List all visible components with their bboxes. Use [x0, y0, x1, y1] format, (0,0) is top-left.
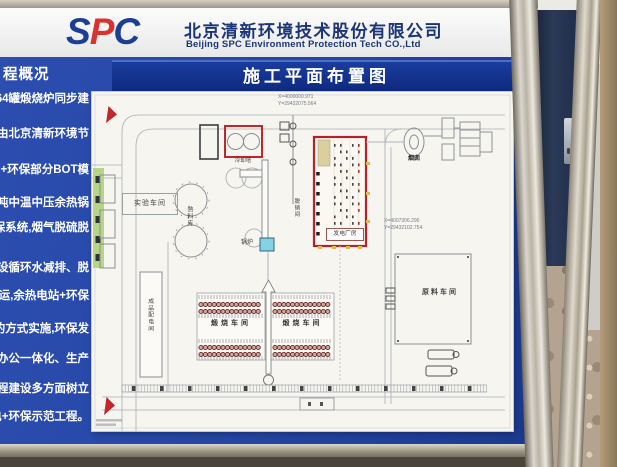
- label-product-distribution: 成品配电间: [146, 298, 153, 332]
- label-clinker-silo: 熟料库: [185, 206, 192, 227]
- label-chimney: 烟囱: [402, 156, 426, 163]
- label-boiler: 锅炉: [241, 240, 253, 247]
- label-raw-material: 原料车间: [422, 289, 458, 297]
- sidebar-text-line: C+环保部分BOT模: [0, 161, 92, 177]
- sidebar-text-line: 生产办公一体化、生产: [0, 350, 92, 366]
- label-calcination-right: 煅烧车间: [271, 320, 334, 328]
- signboard: SPC 北京清新环境技术股份有限公司 Beijing SPC Environme…: [0, 0, 541, 458]
- plan-boundary: [95, 95, 510, 428]
- sidebar-text-line: 吨中温中压余热锅: [0, 194, 92, 210]
- label-power-plant: 发电厂房: [326, 228, 364, 241]
- site-plan-drawing: [92, 92, 513, 431]
- logo-letter-c: C: [113, 11, 139, 52]
- sidebar-text-line: 由北京清新环境节: [0, 125, 92, 141]
- label-denitration: 脱硝间: [293, 198, 299, 218]
- sidebar-text-line: 64罐煅烧炉同步建: [0, 90, 92, 106]
- plan-markers: [96, 106, 469, 426]
- spc-logo: SPC: [66, 11, 139, 53]
- company-name-en: Beijing SPC Environment Protection Tech …: [186, 39, 421, 50]
- board-bottom-rail: [0, 444, 543, 458]
- plan-structures: [100, 115, 492, 410]
- board-top-frame: [0, 0, 541, 8]
- frame-post-far-right: [600, 0, 617, 467]
- chimney-symbol: [404, 128, 424, 156]
- sidebar-text-line: 步建设循环水减排、脱: [0, 259, 92, 275]
- project-overview-sidebar: 程概况 64罐煅烧炉同步建 由北京清新环境节 C+环保部分BOT模 吨中温中压余…: [0, 57, 98, 445]
- site-plan-panel: X=4000000.971 Y=29432075.564 X=4007306.2…: [92, 92, 513, 431]
- building-block: [200, 125, 218, 159]
- sidebar-text-line: 设的方式实施,环保发: [0, 320, 92, 336]
- sidebar-text-line: 电+环保示范工程。: [0, 408, 92, 424]
- site-signboard-photo: SPC 北京清新环境技术股份有限公司 Beijing SPC Environme…: [0, 0, 617, 467]
- flue-gas-equipment: [424, 118, 492, 160]
- sidebar-text-line: 保系统,烟气脱硫脱: [0, 219, 92, 235]
- logo-letter-s: S: [66, 11, 90, 52]
- label-lab-workshop: 实验车间: [122, 193, 178, 215]
- sidebar-heading: 程概况: [3, 63, 50, 84]
- boiler-box: [260, 238, 274, 251]
- greenbelt: [93, 168, 104, 268]
- north-flag-bottom: [104, 397, 115, 415]
- label-calcination-left: 煅烧车间: [197, 320, 265, 328]
- coordinate-label-right: X=4007306.296 Y=29432102.754: [384, 218, 422, 231]
- label-cooling-tower: 冷却塔: [223, 158, 263, 164]
- ground-shadow: [0, 457, 543, 467]
- logo-letter-p: P: [90, 11, 114, 52]
- coordinate-label-top: X=4000000.971 Y=29432075.564: [278, 94, 316, 107]
- board-header: SPC 北京清新环境技术股份有限公司 Beijing SPC Environme…: [0, 8, 541, 57]
- plan-title: 施工平面布置图: [112, 60, 521, 92]
- sidebar-text-line: 投运,余热电站+环保: [0, 287, 92, 303]
- north-flag-top: [106, 106, 117, 123]
- sidebar-text-line: 程、工程建设多方面树立: [0, 380, 92, 396]
- raw-material-building: [395, 254, 471, 344]
